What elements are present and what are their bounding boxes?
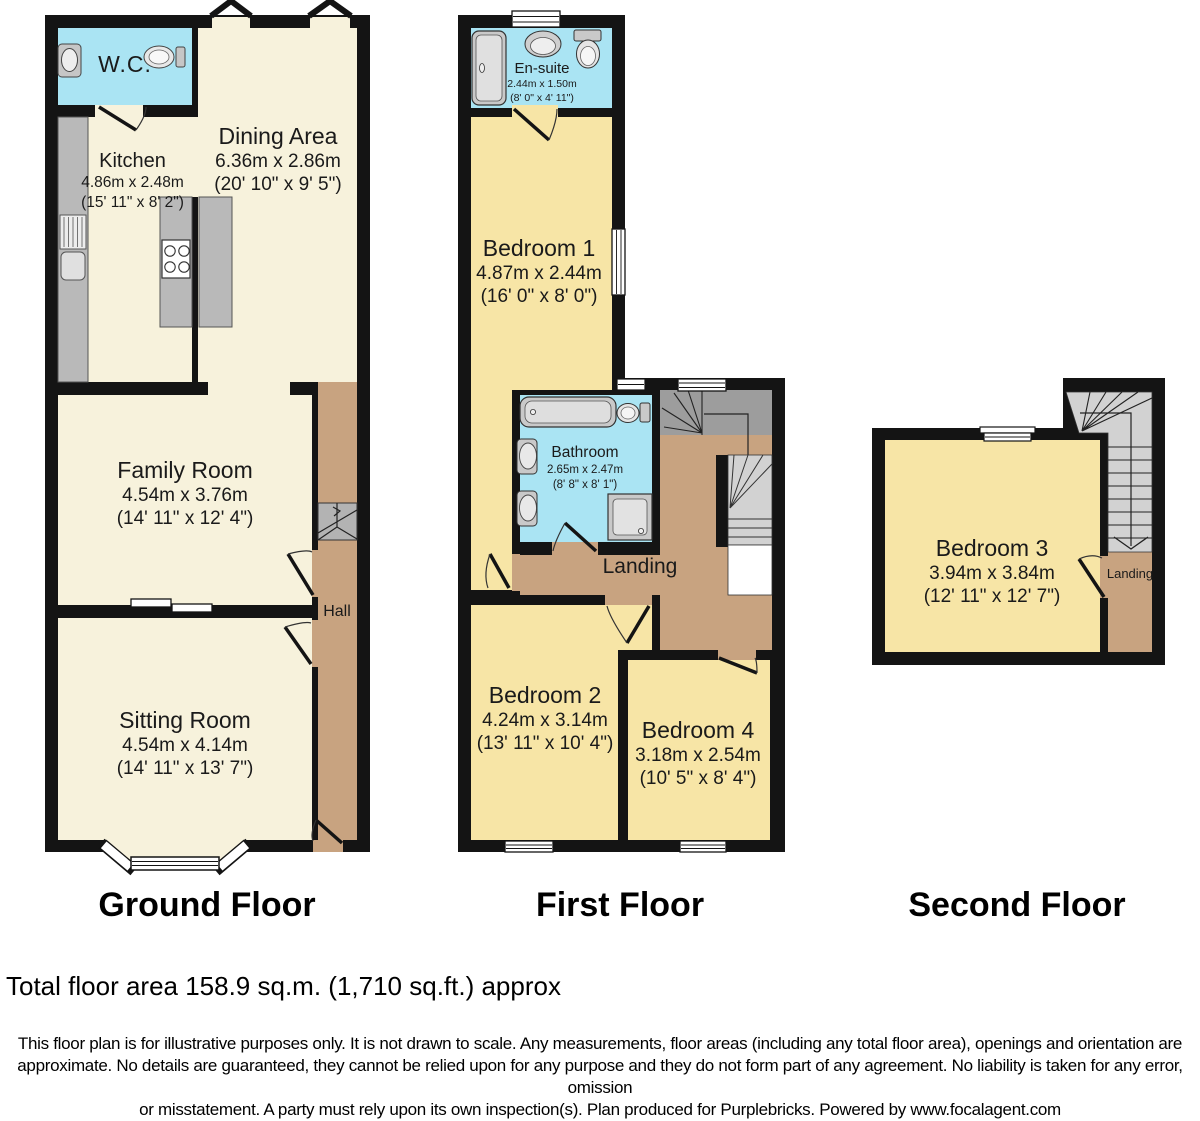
room-dims-metric: 4.86m x 2.48m [60, 173, 205, 192]
label-wc: W.C. [75, 50, 175, 78]
room-dims-imperial: (12' 11" x 12' 7") [889, 585, 1095, 608]
room-dims-imperial: (20' 10" x 9' 5") [197, 173, 359, 196]
room-name: Dining Area [197, 122, 359, 150]
room-dims-metric: 4.87m x 2.44m [456, 262, 622, 285]
room-dims-metric: 6.36m x 2.86m [197, 150, 359, 173]
label-family-room: Family Room 4.54m x 3.76m (14' 11" x 12'… [83, 456, 287, 530]
room-dims-imperial: (16' 0" x 8' 0") [456, 285, 622, 308]
opening-bedroom1-landing [512, 554, 520, 591]
room-name: Family Room [83, 456, 287, 484]
stairs-up [728, 455, 772, 595]
kitchen-island [160, 197, 192, 327]
label-bedroom2: Bedroom 2 4.24m x 3.14m (13' 11" x 10' 4… [463, 681, 627, 755]
label-landing: Landing [578, 554, 702, 580]
room-name: Bedroom 4 [616, 716, 780, 744]
room-dims-metric: 4.24m x 3.14m [463, 709, 627, 732]
window-bedroom2 [505, 841, 553, 852]
title-second-floor: Second Floor [857, 886, 1177, 925]
room-dims-metric: 3.18m x 2.54m [616, 744, 780, 767]
room-name: Bedroom 3 [889, 534, 1095, 562]
room-name: Sitting Room [83, 706, 287, 734]
bath-icon [520, 397, 616, 427]
bay-window [100, 840, 250, 871]
label-bedroom1: Bedroom 1 4.87m x 2.44m (16' 0" x 8' 0") [456, 234, 622, 308]
label-dining-area: Dining Area 6.36m x 2.86m (20' 10" x 9' … [197, 122, 359, 196]
room-dims-imperial: (10' 5" x 8' 4") [616, 767, 780, 790]
label-hall: Hall [315, 602, 359, 622]
title-first-floor: First Floor [460, 886, 780, 925]
stairs-down [660, 390, 772, 435]
sink-icon [61, 252, 85, 280]
room-dims-imperial: (8' 0" x 4' 11") [480, 92, 604, 106]
second-floor-plan [872, 378, 1165, 665]
disclaimer-line-3: or misstatement. A party must rely upon … [0, 1099, 1200, 1121]
hall-stairs [318, 503, 357, 540]
bay-center-window [131, 857, 219, 870]
total-floor-area: Total floor area 158.9 sq.m. (1,710 sq.f… [6, 971, 561, 1002]
room-name: Bedroom 1 [456, 234, 622, 262]
title-ground-floor: Ground Floor [47, 886, 367, 925]
disclaimer-line-1: This floor plan is for illustrative purp… [0, 1033, 1200, 1055]
room-dims-metric: 2.44m x 1.50m [480, 78, 604, 92]
label-bedroom4: Bedroom 4 3.18m x 2.54m (10' 5" x 8' 4") [616, 716, 780, 790]
room-name: Bedroom 2 [463, 681, 627, 709]
dining-counter [199, 197, 232, 327]
room-dims-imperial: (15' 11" x 8' 2") [60, 193, 205, 212]
floorplan-canvas: W.C. Kitchen 4.86m x 2.48m (15' 11" x 8'… [0, 0, 1200, 1080]
room-dims-imperial: (13' 11" x 10' 4") [463, 732, 627, 755]
room-dims-imperial: (14' 11" x 13' 7") [83, 757, 287, 780]
disclaimer-line-2: approximate. No details are guaranteed, … [0, 1055, 1200, 1099]
label-sitting-room: Sitting Room 4.54m x 4.14m (14' 11" x 13… [83, 706, 287, 780]
room-dims-imperial: (14' 11" x 12' 4") [83, 507, 287, 530]
bathroom-shower-icon [608, 494, 652, 540]
opening-dining-family [208, 382, 290, 395]
window-ensuite [512, 11, 560, 27]
bathroom-sink2-icon [517, 491, 537, 526]
room-name: W.C. [75, 50, 175, 78]
label-ensuite: En-suite 2.44m x 1.50m (8' 0" x 4' 11") [480, 60, 604, 106]
room-dims-metric: 4.54m x 3.76m [83, 484, 287, 507]
room-name: Kitchen [60, 149, 205, 173]
stairwell-wall [716, 455, 728, 547]
room-dims-metric: 2.65m x 2.47m [523, 463, 647, 478]
room-dims-metric: 4.54m x 4.14m [83, 734, 287, 757]
hob-icon [162, 240, 190, 278]
label-landing2: Landing [1104, 566, 1156, 582]
bathroom-toilet-icon [617, 403, 650, 423]
window-bedroom4 [680, 841, 726, 852]
window-bathroom [617, 379, 645, 390]
window-bedroom3 [980, 427, 1035, 441]
room-dims-imperial: (8' 8" x 8' 1") [523, 478, 647, 493]
label-bathroom: Bathroom 2.65m x 2.47m (8' 8" x 8' 1") [523, 444, 647, 493]
window-stairwell [678, 379, 726, 391]
ensuite-sink-icon [525, 31, 561, 57]
room-name: En-suite [480, 60, 604, 78]
label-bedroom3: Bedroom 3 3.94m x 3.84m (12' 11" x 12' 7… [889, 534, 1095, 608]
disclaimer-text: This floor plan is for illustrative purp… [0, 1033, 1200, 1121]
label-kitchen: Kitchen 4.86m x 2.48m (15' 11" x 8' 2") [60, 149, 205, 212]
room-dims-metric: 3.94m x 3.84m [889, 562, 1095, 585]
room-name: Bathroom [523, 444, 647, 463]
